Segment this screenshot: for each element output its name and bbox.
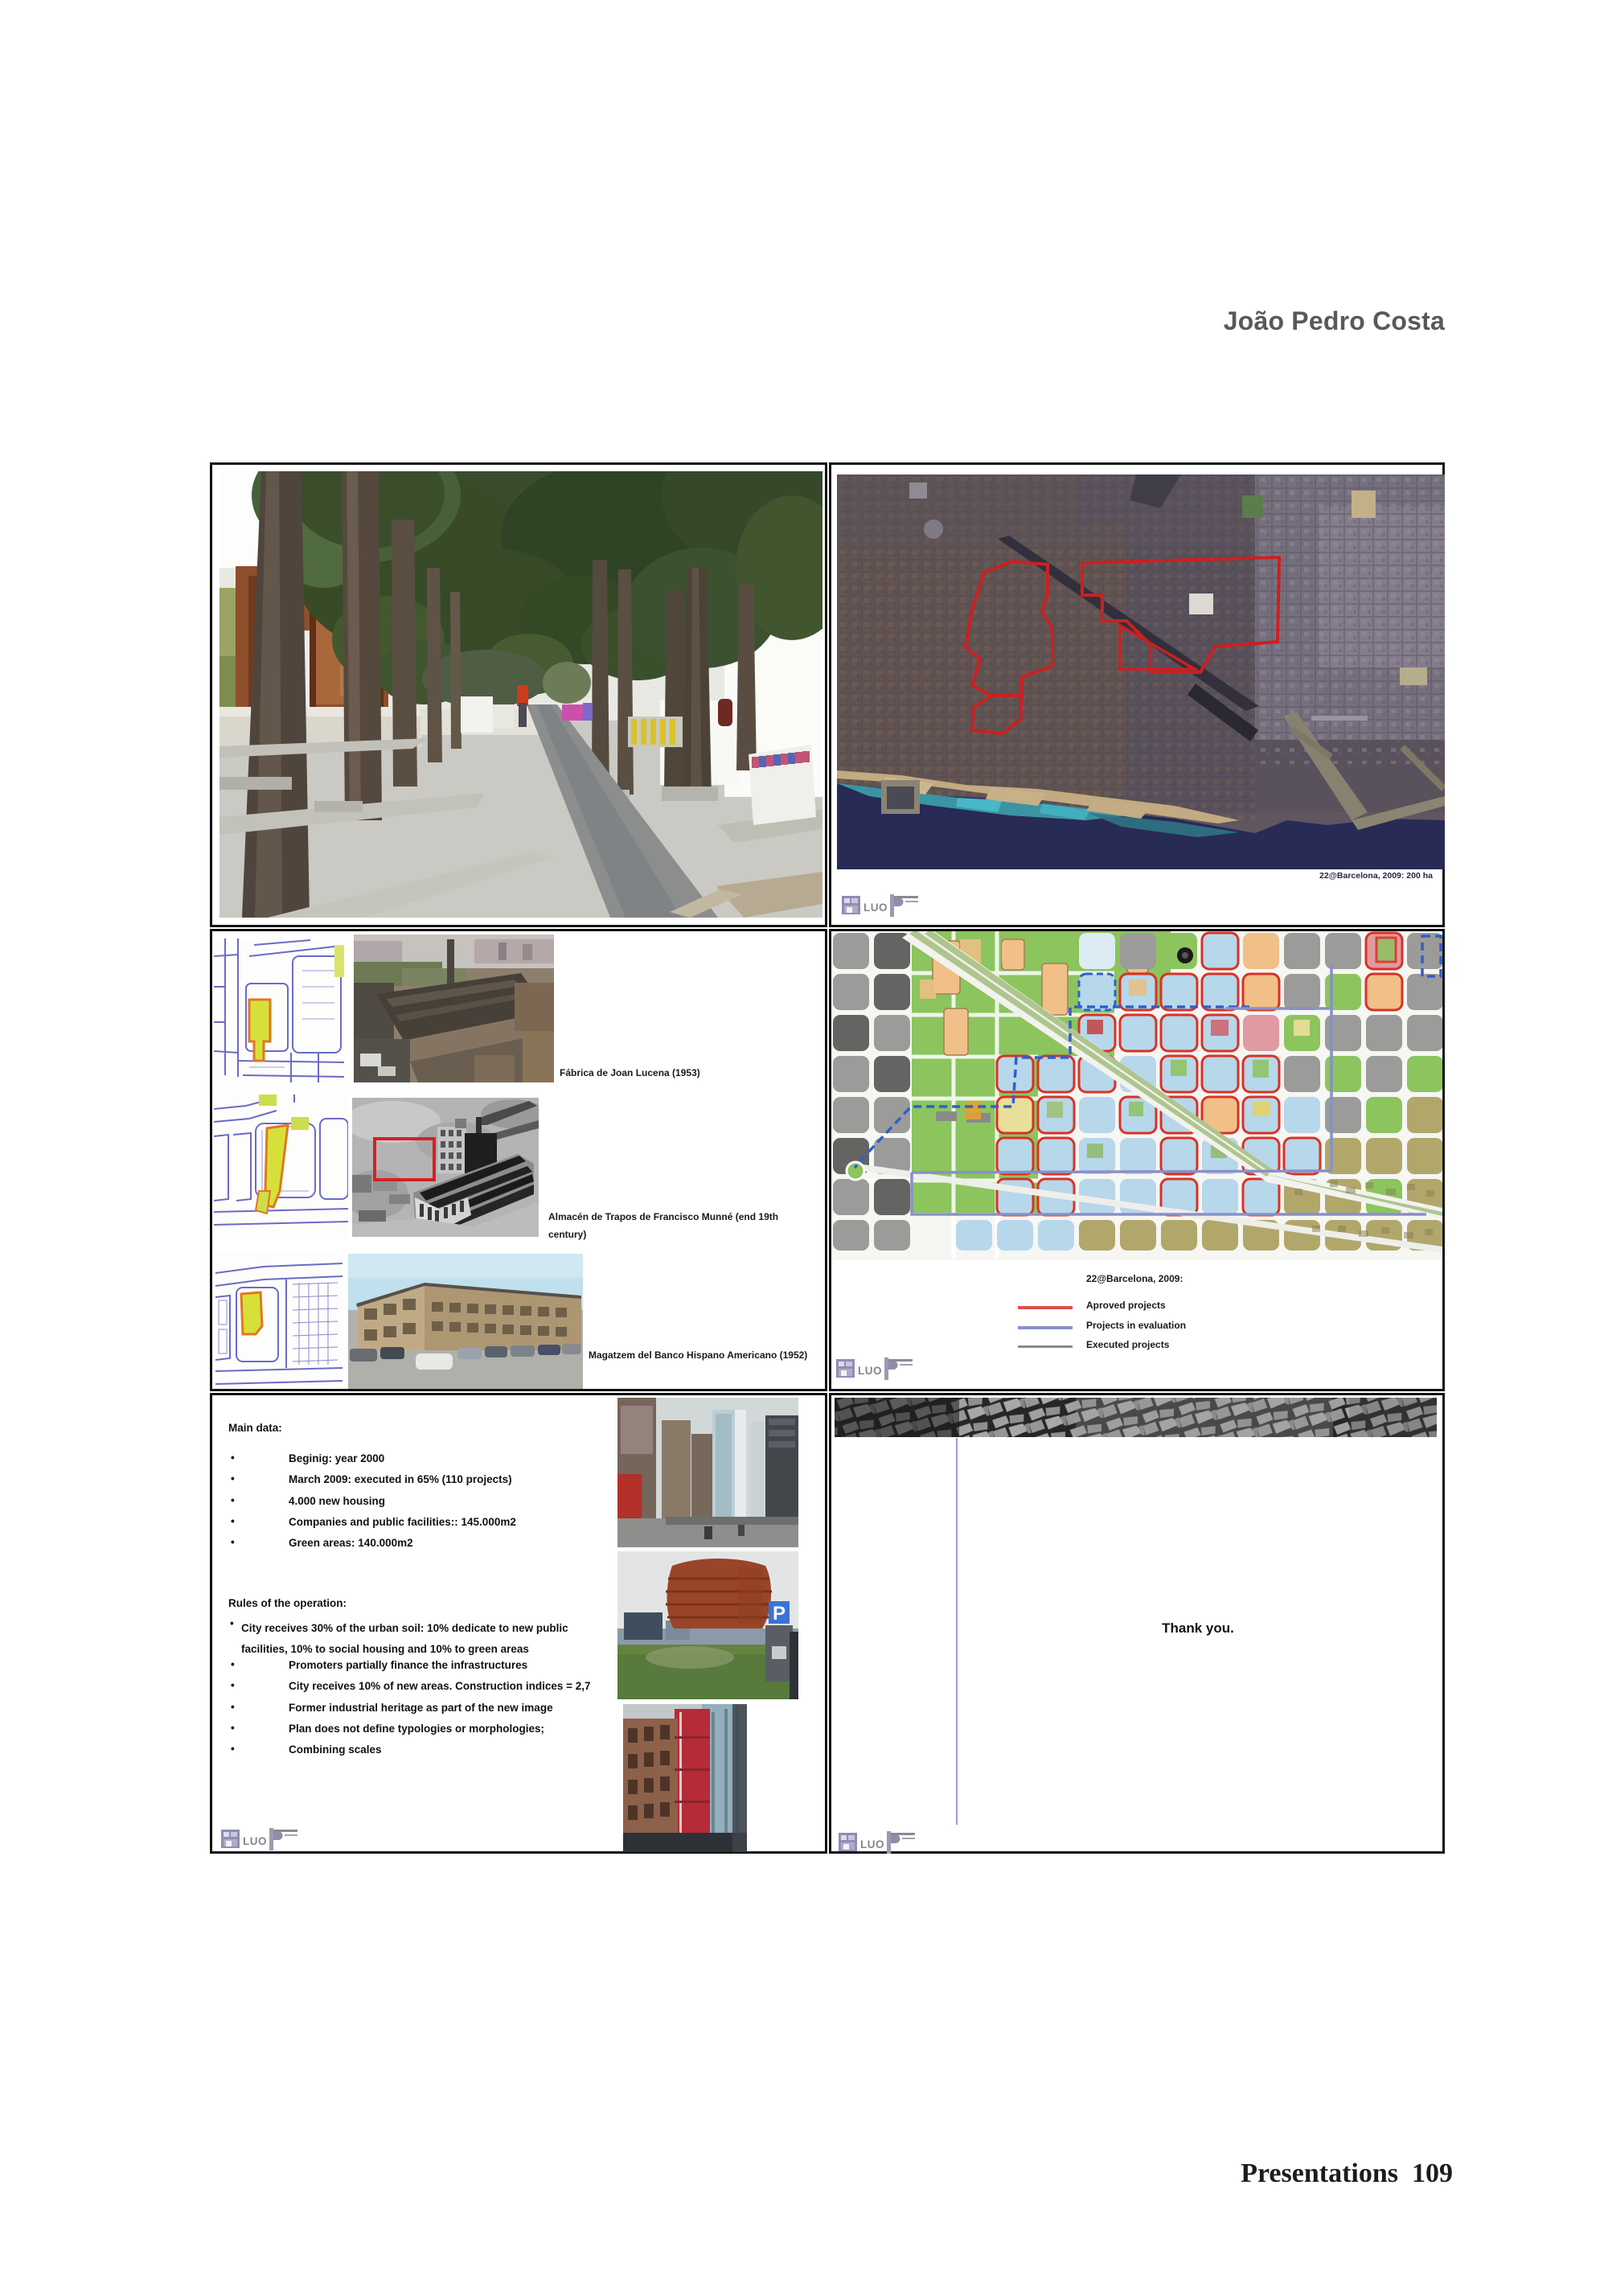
svg-text:LUO: LUO xyxy=(858,1365,882,1377)
svg-text:LUO: LUO xyxy=(863,902,888,914)
svg-text:P: P xyxy=(773,1603,786,1624)
svg-text:LUO: LUO xyxy=(860,1838,884,1850)
svg-text:LUO: LUO xyxy=(243,1835,267,1847)
